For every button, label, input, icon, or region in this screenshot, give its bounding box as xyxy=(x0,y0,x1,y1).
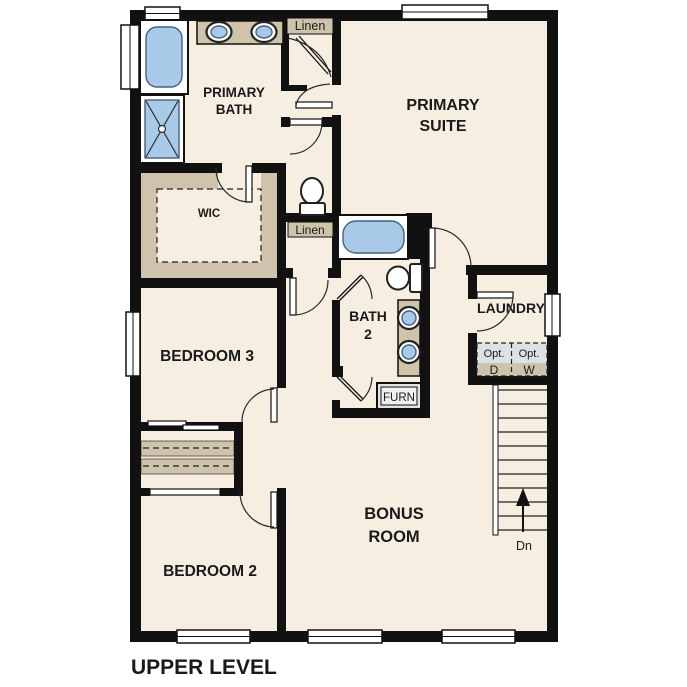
window xyxy=(545,294,560,336)
opt-washer-qualifier: Opt. xyxy=(519,348,540,360)
room-label-bath2-2: 2 xyxy=(364,326,372,342)
floorplan-canvas: PRIMARY BATH PRIMARY SUITE WIC Linen Lin… xyxy=(0,0,687,687)
window xyxy=(402,5,488,19)
stair-rail xyxy=(493,385,498,535)
floor-area xyxy=(130,10,558,642)
bedroom2-closet-opening xyxy=(150,489,220,495)
window xyxy=(145,7,180,20)
window xyxy=(126,312,140,376)
window xyxy=(308,630,382,643)
upper-level-floorplan: PRIMARY BATH PRIMARY SUITE WIC Linen Lin… xyxy=(0,0,687,687)
toilet-icon xyxy=(300,178,325,215)
room-label-primary-suite-1: PRIMARY xyxy=(406,97,480,114)
window xyxy=(121,25,139,89)
room-label-primary-suite-2: SUITE xyxy=(419,118,466,135)
room-label-bonus-2: ROOM xyxy=(368,528,419,546)
room-label-bedroom2: BEDROOM 2 xyxy=(163,563,257,580)
stairs-direction-label: Dn xyxy=(516,539,532,553)
room-label-bedroom3: BEDROOM 3 xyxy=(160,348,254,365)
window xyxy=(442,630,515,643)
bathtub2-icon xyxy=(338,215,408,259)
room-label-primary-bath-1: PRIMARY xyxy=(203,85,265,100)
room-label-laundry: LAUNDRY xyxy=(477,300,546,316)
bathtub-icon xyxy=(140,20,188,94)
equipment-label-furnace: FURN xyxy=(383,392,415,404)
opt-dryer-letter: D xyxy=(490,363,499,377)
window xyxy=(177,630,250,643)
closet-label-linen-upper: Linen xyxy=(295,19,326,33)
opt-dryer-qualifier: Opt. xyxy=(484,348,505,360)
room-label-primary-bath-2: BATH xyxy=(216,102,253,117)
opt-washer-letter: W xyxy=(523,363,535,377)
double-vanity-icon xyxy=(197,21,283,44)
room-label-wic: WIC xyxy=(198,208,220,220)
room-label-bonus-1: BONUS xyxy=(364,505,424,523)
bath2-vanity-icon xyxy=(398,300,420,376)
room-label-bath2-1: BATH xyxy=(349,308,387,324)
closet-label-linen-hall: Linen xyxy=(295,223,324,237)
toilet2-icon xyxy=(387,264,422,292)
page-title: UPPER LEVEL xyxy=(131,656,277,679)
shower-icon xyxy=(140,95,184,163)
